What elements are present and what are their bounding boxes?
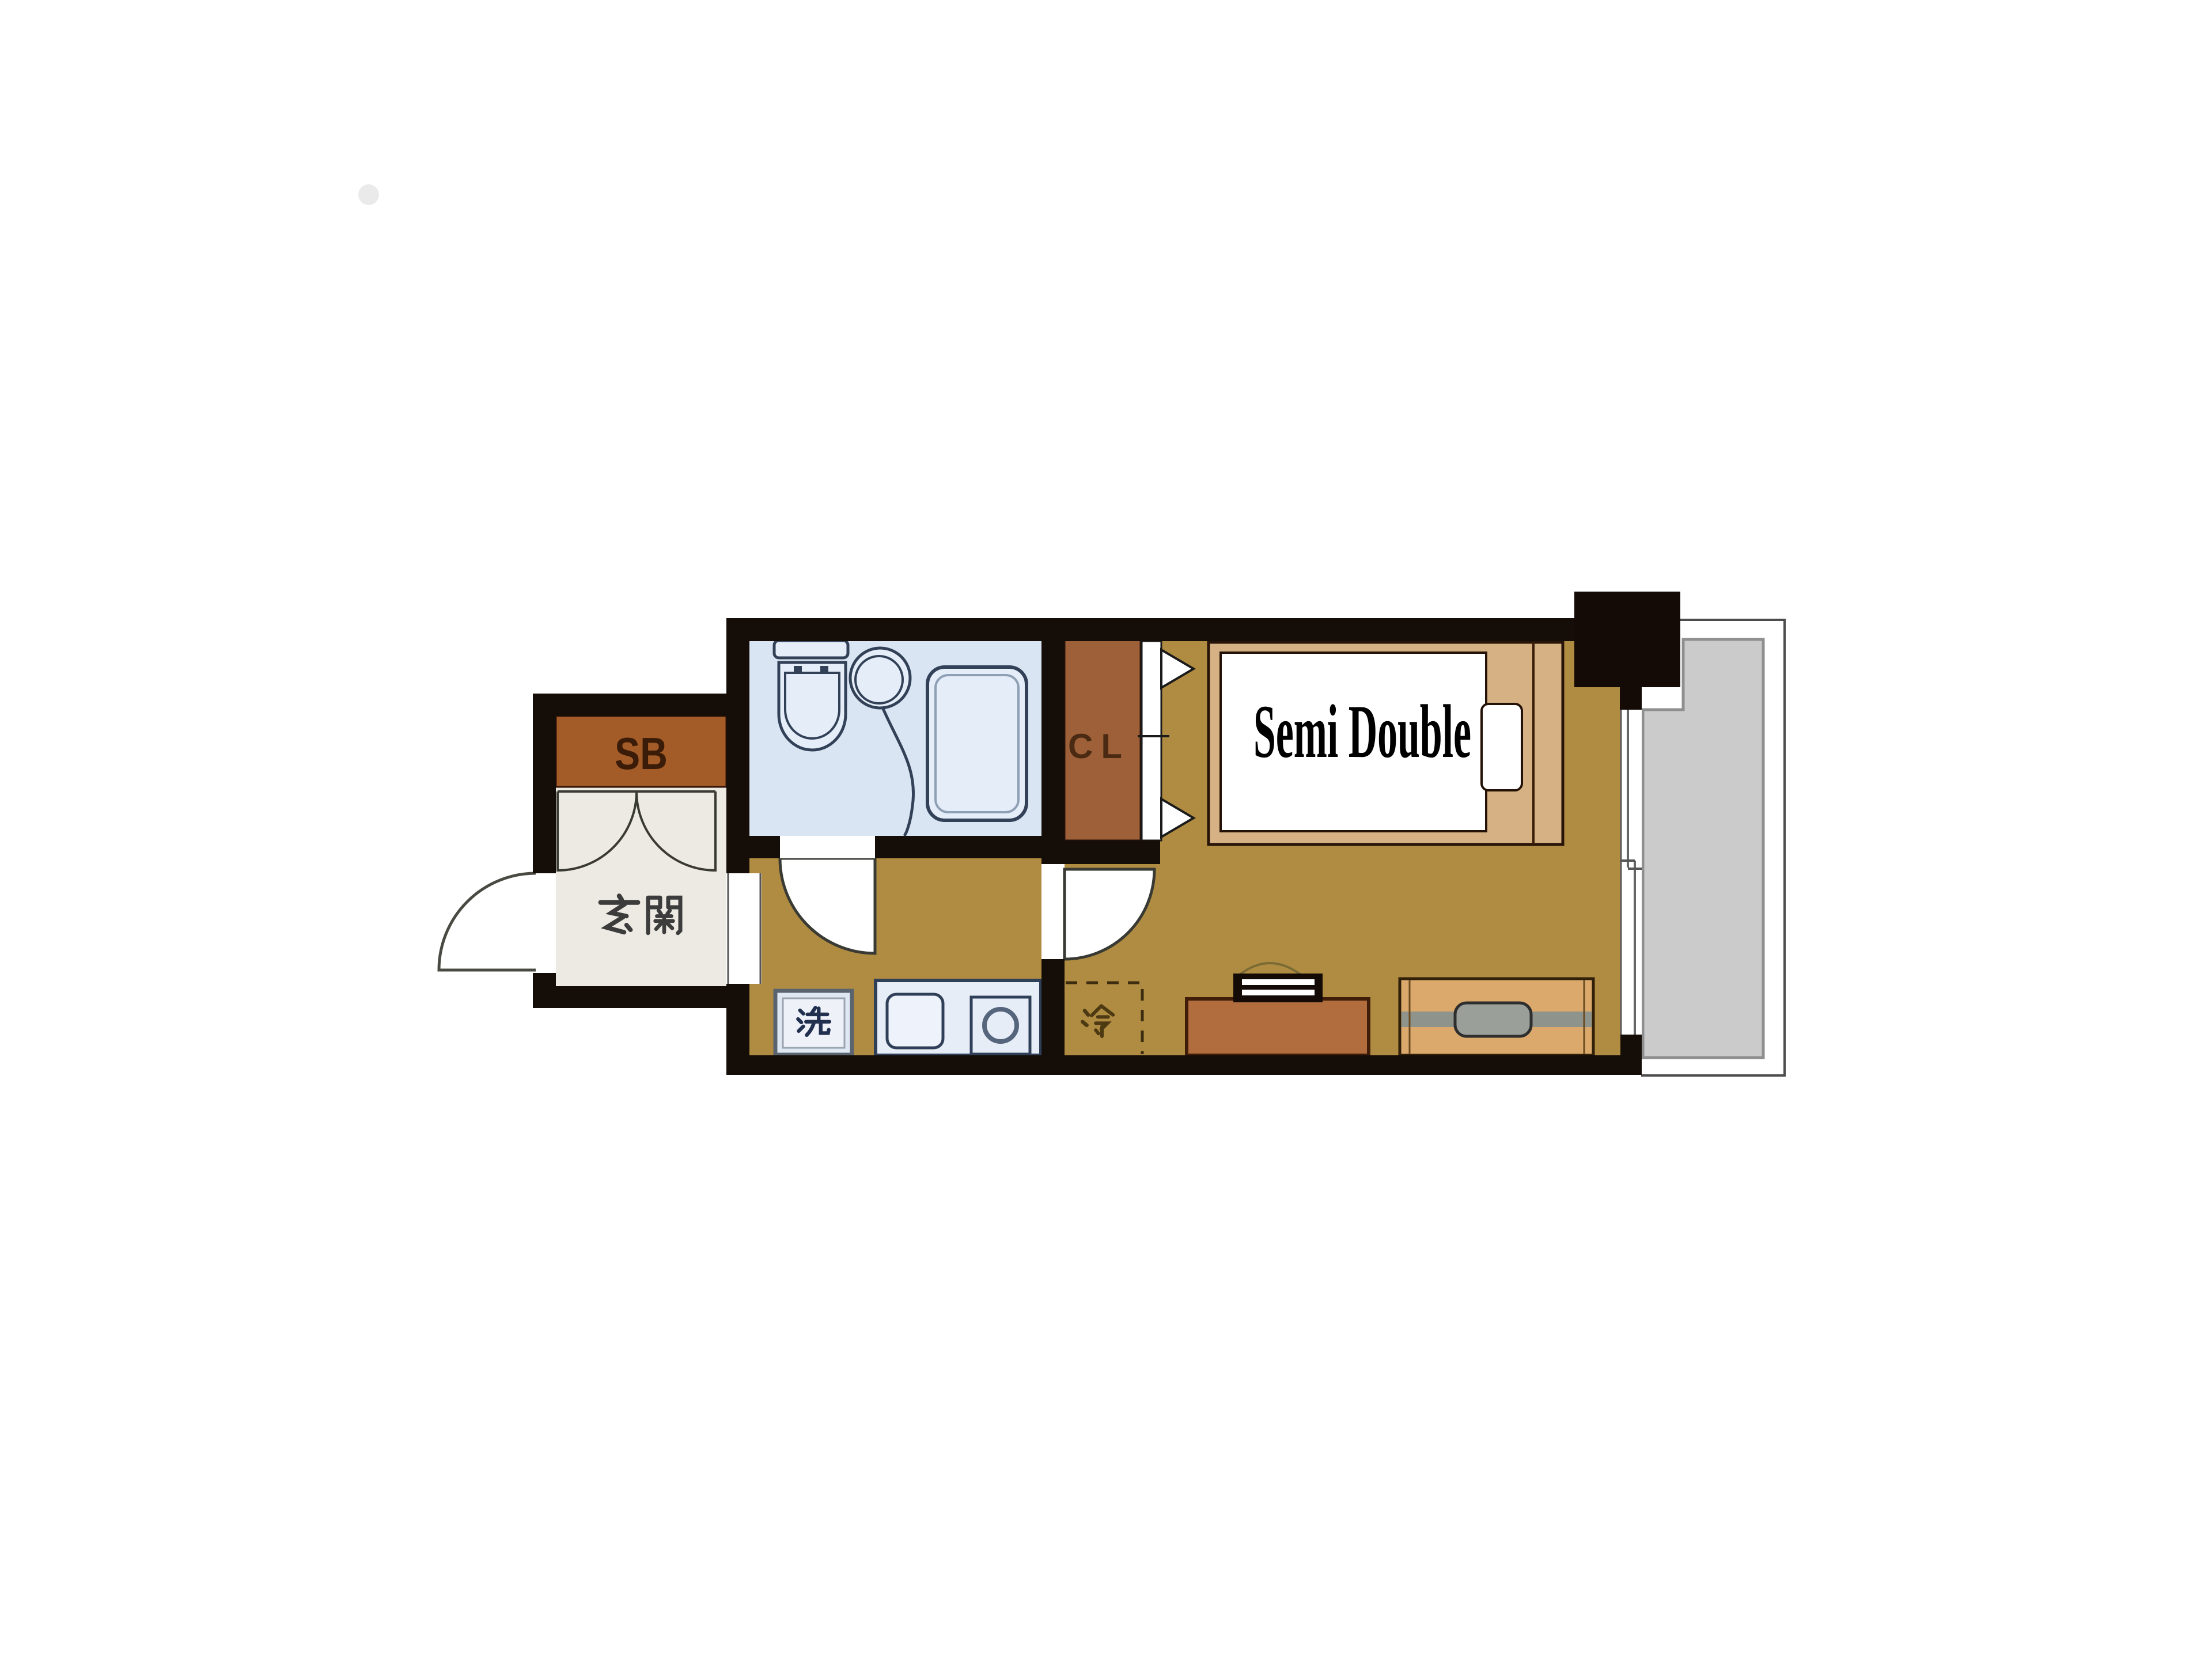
svg-text:CL: CL — [1068, 727, 1130, 766]
svg-text:Semi Double: Semi Double — [1253, 689, 1471, 774]
svg-text:SB: SB — [615, 728, 668, 779]
